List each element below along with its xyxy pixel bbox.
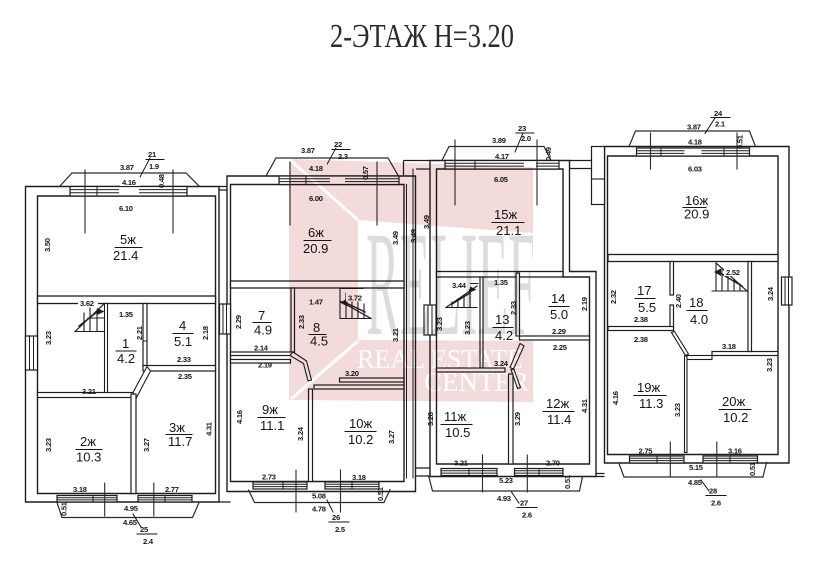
svg-text:3.23: 3.23 [765,358,774,372]
svg-text:20.9: 20.9 [684,207,709,222]
svg-text:6.10: 6.10 [119,204,133,213]
svg-text:0.51: 0.51 [736,134,745,149]
svg-text:3.23: 3.23 [44,438,53,452]
svg-text:4.18: 4.18 [688,138,702,147]
svg-text:22: 22 [334,140,342,149]
svg-text:12ж: 12ж [546,396,569,411]
svg-text:5.08: 5.08 [312,492,326,501]
svg-text:5.23: 5.23 [499,476,513,485]
svg-text:4.31: 4.31 [205,421,214,436]
svg-text:2.40: 2.40 [674,294,683,308]
svg-text:11ж: 11ж [444,409,466,424]
svg-text:2.19: 2.19 [258,361,272,370]
svg-text:3.21: 3.21 [454,459,469,468]
svg-text:0.51: 0.51 [563,474,572,489]
svg-text:0.48: 0.48 [157,174,166,188]
svg-text:3.18: 3.18 [73,485,87,494]
svg-text:2.6: 2.6 [522,511,532,520]
svg-text:4.31: 4.31 [580,398,589,413]
svg-text:2ж: 2ж [80,434,96,449]
svg-text:2.29: 2.29 [234,315,243,329]
svg-text:9ж: 9ж [262,402,278,417]
svg-text:14: 14 [551,291,565,306]
svg-text:4.17: 4.17 [495,152,509,161]
svg-text:11.1: 11.1 [260,418,284,433]
svg-text:4.0: 4.0 [690,312,708,327]
svg-text:2.32: 2.32 [609,290,618,304]
svg-text:25: 25 [140,525,149,534]
svg-text:2.25: 2.25 [553,343,568,352]
svg-text:2.70: 2.70 [546,459,560,468]
svg-text:5.15: 5.15 [689,463,704,472]
svg-text:3.24: 3.24 [296,426,305,441]
svg-text:7: 7 [258,308,265,323]
svg-text:4.93: 4.93 [497,494,511,503]
svg-text:2.21: 2.21 [135,325,144,340]
svg-text:2.35: 2.35 [178,372,193,381]
svg-text:11.4: 11.4 [547,412,571,427]
svg-text:3.23: 3.23 [44,331,53,345]
svg-text:10ж: 10ж [349,416,372,431]
svg-text:3ж: 3ж [169,420,185,435]
svg-text:26: 26 [332,513,340,522]
svg-text:24: 24 [714,109,723,118]
svg-text:3.16: 3.16 [728,447,742,456]
svg-text:11.7: 11.7 [168,434,192,449]
svg-text:2.33: 2.33 [177,355,191,364]
svg-text:10.2: 10.2 [723,410,748,425]
svg-text:27: 27 [520,499,528,508]
svg-text:10.2: 10.2 [348,432,373,447]
svg-text:10.3: 10.3 [76,450,101,465]
svg-text:0.51: 0.51 [376,486,385,501]
svg-text:1.35: 1.35 [119,310,134,319]
svg-text:3.24: 3.24 [766,286,775,301]
svg-text:3.50: 3.50 [43,238,52,252]
svg-text:28: 28 [709,487,717,496]
svg-text:2.4: 2.4 [143,537,154,546]
svg-text:23: 23 [518,124,526,133]
svg-text:2.6: 2.6 [711,499,721,508]
svg-text:21.4: 21.4 [113,248,138,263]
svg-text:5.0: 5.0 [550,307,568,322]
svg-text:0.51: 0.51 [60,501,69,516]
svg-text:4.85: 4.85 [688,478,703,487]
svg-text:3.89: 3.89 [492,136,506,145]
svg-text:5.5: 5.5 [638,300,656,315]
svg-text:4: 4 [179,318,186,333]
svg-text:3.87: 3.87 [687,123,701,132]
svg-text:0.49: 0.49 [544,147,553,161]
svg-text:4.16: 4.16 [122,178,136,187]
svg-text:2.3: 2.3 [338,152,348,161]
svg-text:3.18: 3.18 [722,342,736,351]
svg-text:5ж: 5ж [120,232,136,247]
svg-text:2.5: 2.5 [335,525,346,534]
svg-text:3.62: 3.62 [80,299,94,308]
svg-text:10.5: 10.5 [445,425,470,440]
svg-text:2.38: 2.38 [634,315,648,324]
svg-text:4.65: 4.65 [123,518,138,527]
svg-text:2.1: 2.1 [715,120,726,129]
svg-text:4.95: 4.95 [124,504,139,513]
svg-text:CENTER: CENTER [424,367,529,397]
svg-text:4.16: 4.16 [235,410,244,424]
svg-text:18: 18 [689,295,703,310]
svg-text:3.18: 3.18 [352,473,366,482]
svg-text:4.2: 4.2 [117,351,135,366]
svg-text:21: 21 [148,150,157,159]
svg-text:2.75: 2.75 [639,447,654,456]
svg-text:6.03: 6.03 [688,165,702,174]
svg-text:3.87: 3.87 [120,163,134,172]
svg-text:4.78: 4.78 [312,505,326,514]
svg-text:4.16: 4.16 [611,391,620,405]
svg-text:3.28: 3.28 [426,412,435,426]
svg-text:2.19: 2.19 [580,297,589,311]
svg-text:3.27: 3.27 [387,430,396,444]
svg-text:0.51: 0.51 [748,461,757,476]
svg-text:2.29: 2.29 [552,327,566,336]
svg-text:5.1: 5.1 [174,334,192,349]
svg-text:1: 1 [122,336,129,351]
svg-text:2.77: 2.77 [165,485,179,494]
svg-text:2.18: 2.18 [201,326,210,340]
svg-text:3.21: 3.21 [82,387,97,396]
svg-text:3.87: 3.87 [301,146,315,155]
svg-text:2.38: 2.38 [634,335,648,344]
svg-text:2.52: 2.52 [726,268,740,277]
svg-text:2.14: 2.14 [254,344,269,353]
svg-text:17: 17 [637,283,651,298]
svg-text:2-ЭТАЖ Н=3.20: 2-ЭТАЖ Н=3.20 [330,18,514,55]
svg-text:2.73: 2.73 [262,473,276,482]
svg-text:4.9: 4.9 [254,323,272,338]
svg-text:3.23: 3.23 [673,403,682,417]
svg-text:11.3: 11.3 [639,396,663,411]
svg-text:3.27: 3.27 [142,438,151,452]
svg-text:20ж: 20ж [722,394,745,409]
svg-text:3.29: 3.29 [513,412,522,426]
svg-text:1.9: 1.9 [149,162,159,171]
svg-text:19ж: 19ж [637,380,660,395]
